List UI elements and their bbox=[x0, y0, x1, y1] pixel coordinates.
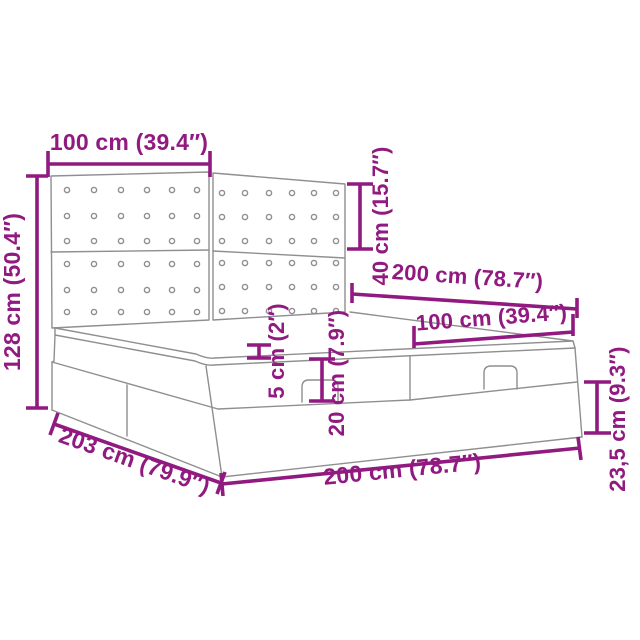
tufting-button bbox=[91, 187, 96, 192]
tufting-button bbox=[91, 261, 96, 266]
diagram-canvas: 100 cm (39.4″) 40 cm (15.7″) 128 cm (50.… bbox=[0, 0, 640, 640]
tufting-button bbox=[311, 260, 316, 265]
tufting-button bbox=[144, 287, 149, 292]
tufting-button bbox=[194, 213, 199, 218]
dim-mattress-height: 20 cm (7.9″) bbox=[309, 310, 349, 437]
tufting-button bbox=[289, 190, 294, 195]
tufting-button bbox=[194, 238, 199, 243]
headboard-left-seam bbox=[51, 250, 209, 252]
tufting-button bbox=[118, 213, 123, 218]
tufting-button bbox=[266, 238, 271, 243]
tufting-button bbox=[169, 261, 174, 266]
tufting-button bbox=[64, 287, 69, 292]
front-corner-edge bbox=[206, 366, 222, 477]
headboard-right-seam bbox=[213, 251, 345, 258]
tufting-button bbox=[219, 190, 224, 195]
tufting-button bbox=[289, 238, 294, 243]
tufting-button bbox=[64, 187, 69, 192]
dim-base-height-label: 23,5 cm (9.3″) bbox=[605, 346, 630, 491]
tufting-button bbox=[219, 308, 224, 313]
tufting-button bbox=[333, 238, 338, 243]
tufting-button bbox=[333, 214, 338, 219]
tufting-button bbox=[64, 261, 69, 266]
dim-base-height: 23,5 cm (9.3″) bbox=[584, 346, 630, 491]
tufting-button bbox=[311, 214, 316, 219]
left-face-seam bbox=[52, 362, 218, 409]
dim-topper-thickness-label: 5 cm (2″) bbox=[264, 303, 289, 398]
dim-bed-width-bottom-label: 200 cm (78.7″) bbox=[322, 448, 482, 490]
tufting-button bbox=[118, 287, 123, 292]
tufting-button bbox=[91, 287, 96, 292]
dim-headboard-panel-height-label: 40 cm (15.7″) bbox=[368, 146, 393, 285]
tufting-button bbox=[311, 308, 316, 313]
tufting-button bbox=[144, 213, 149, 218]
tufting-button bbox=[64, 213, 69, 218]
tufting-button bbox=[194, 309, 199, 314]
tufting-button bbox=[289, 284, 294, 289]
tufting-button bbox=[169, 238, 174, 243]
tufting-button bbox=[289, 260, 294, 265]
tufting-button bbox=[311, 284, 316, 289]
right-corner-edge bbox=[575, 348, 582, 437]
tufting-button bbox=[219, 284, 224, 289]
tufting-button bbox=[169, 213, 174, 218]
tufting-button bbox=[118, 187, 123, 192]
tufting-button bbox=[242, 190, 247, 195]
tufting-button bbox=[242, 260, 247, 265]
tufting-button bbox=[169, 287, 174, 292]
dim-bed-width-top-label: 200 cm (78.7″) bbox=[391, 259, 544, 294]
tufting-button bbox=[144, 309, 149, 314]
tufting-button bbox=[242, 238, 247, 243]
tufting-button bbox=[311, 238, 316, 243]
tufting-button bbox=[333, 260, 338, 265]
tufting-button bbox=[333, 284, 338, 289]
tufting-button bbox=[144, 238, 149, 243]
tufting-button bbox=[91, 309, 96, 314]
dim-section-width: 100 cm (39.4″) bbox=[414, 299, 573, 348]
dim-bed-width-bottom: 200 cm (78.7″) bbox=[221, 437, 581, 496]
tufting-button bbox=[242, 308, 247, 313]
tufting-button bbox=[266, 214, 271, 219]
tufting-button bbox=[144, 187, 149, 192]
tufting-button bbox=[118, 309, 123, 314]
dim-mattress-height-label: 20 cm (7.9″) bbox=[324, 310, 349, 437]
tufting-button bbox=[194, 287, 199, 292]
tufting-button bbox=[194, 187, 199, 192]
tufting-button bbox=[169, 187, 174, 192]
tufting-button bbox=[219, 260, 224, 265]
right-ottoman-handle bbox=[484, 366, 517, 389]
bed-dimension-diagram: 100 cm (39.4″) 40 cm (15.7″) 128 cm (50.… bbox=[0, 0, 640, 640]
dim-bed-length-label: 203 cm (79.9″) bbox=[56, 422, 214, 499]
topper-right-cap bbox=[573, 341, 575, 348]
dim-headboard-width: 100 cm (39.4″) bbox=[48, 129, 210, 177]
dim-total-height-label: 128 cm (50.4″) bbox=[0, 213, 25, 371]
headboard-right-panel bbox=[213, 173, 345, 320]
tufting-button bbox=[91, 213, 96, 218]
tufting-button bbox=[64, 238, 69, 243]
tufting-button bbox=[169, 309, 174, 314]
dim-bed-length: 203 cm (79.9″) bbox=[50, 413, 225, 499]
tufting-button bbox=[118, 261, 123, 266]
tufting-button bbox=[242, 284, 247, 289]
tufting-button bbox=[289, 308, 294, 313]
tufting-button bbox=[219, 214, 224, 219]
dim-total-height: 128 cm (50.4″) bbox=[0, 176, 48, 408]
tufting-button bbox=[64, 309, 69, 314]
tufting-button bbox=[194, 261, 199, 266]
dim-headboard-width-label: 100 cm (39.4″) bbox=[50, 129, 208, 155]
tufting-button bbox=[333, 190, 338, 195]
tufting-button bbox=[289, 214, 294, 219]
tufting-button bbox=[242, 214, 247, 219]
left-end-edges bbox=[52, 335, 55, 410]
tufting-button bbox=[311, 190, 316, 195]
tufting-button bbox=[118, 238, 123, 243]
tufting-button bbox=[144, 261, 149, 266]
tufting-button bbox=[219, 238, 224, 243]
tufting-button bbox=[266, 284, 271, 289]
tufting-button bbox=[266, 260, 271, 265]
dim-headboard-panel-height: 40 cm (15.7″) bbox=[347, 146, 393, 285]
tufting-button bbox=[266, 190, 271, 195]
tufting-button bbox=[91, 238, 96, 243]
